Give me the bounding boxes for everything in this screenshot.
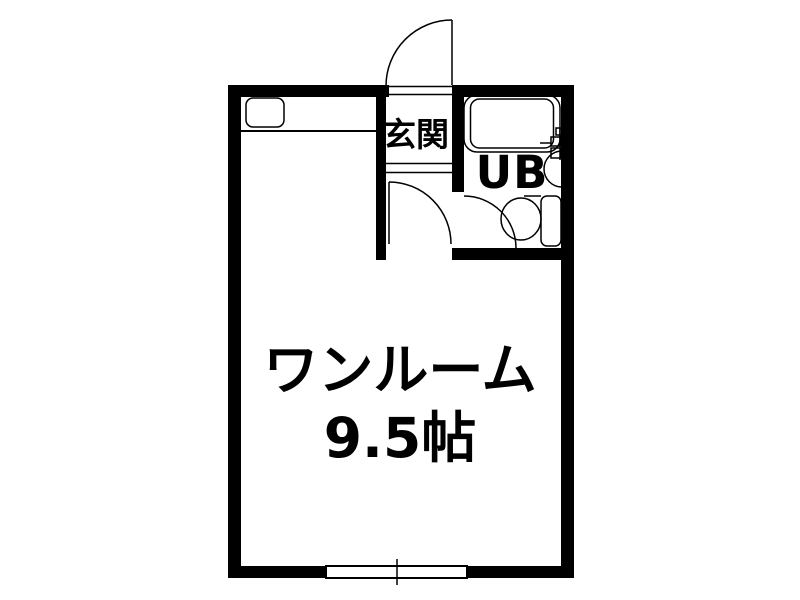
kitchen-sink bbox=[246, 98, 284, 127]
wall-entrance-bath-divider bbox=[452, 97, 464, 192]
entrance-door-arc bbox=[386, 20, 452, 86]
toilet bbox=[501, 196, 561, 246]
floorplan-drawing: 玄関 UB ワンルーム 9.5帖 bbox=[0, 0, 800, 600]
main-room-size: 9.5帖 bbox=[324, 406, 476, 470]
bathtub-inner bbox=[471, 99, 554, 148]
wall-top-left-segment bbox=[228, 85, 389, 97]
floorplan-canvas: 玄関 UB ワンルーム 9.5帖 bbox=[0, 0, 800, 600]
wall-right bbox=[561, 85, 574, 578]
bathroom-label: UB bbox=[476, 146, 549, 199]
main-room-name: ワンルーム bbox=[263, 338, 536, 402]
toilet-tank bbox=[541, 196, 561, 246]
entrance-label: 玄関 bbox=[383, 115, 449, 154]
wall-left bbox=[228, 85, 241, 578]
room-doorway-opening bbox=[386, 248, 452, 260]
room-door-arc bbox=[389, 182, 451, 244]
